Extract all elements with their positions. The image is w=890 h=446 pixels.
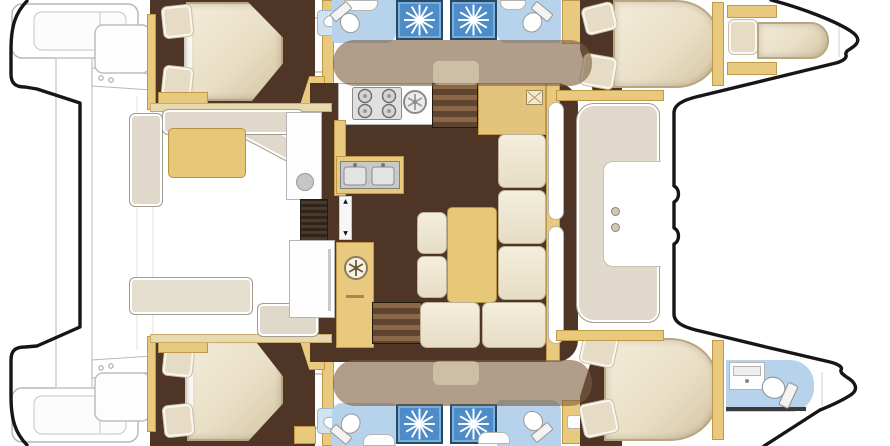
cupholder (611, 207, 620, 216)
pillow (162, 404, 194, 438)
bow-deck-beam (727, 62, 777, 75)
salon-window (548, 102, 564, 220)
wetbar-sink (296, 173, 314, 191)
bow-berth-pillow (729, 20, 757, 54)
dinette-cushion (482, 302, 546, 348)
starburst-shower-drain-icon (398, 2, 441, 38)
bathroom-vanity (500, 0, 526, 10)
stove-burners-icon (352, 87, 402, 120)
dinette-cushion (498, 134, 546, 188)
fwd-cabin-port-double-bed (613, 0, 720, 88)
double-sink-icon (340, 161, 400, 189)
transom-steps-top (12, 4, 138, 58)
davit-bracket-bottom (92, 356, 152, 378)
stern-hull-outline (11, 1, 80, 445)
starburst-shower-drain-icon (398, 406, 441, 442)
catamaran-floor-plan: ▲▼ (0, 0, 890, 446)
bow-single-berth (757, 22, 829, 59)
aft-cabin-stbd-wall (147, 336, 156, 432)
aft-cabin-port-wall (147, 14, 156, 110)
cockpit-fridge (289, 240, 335, 318)
pillow (579, 399, 619, 438)
companionway-stairs-stbd (372, 302, 422, 344)
bow-deck-beam (727, 5, 777, 18)
faucet-dot (745, 379, 749, 383)
shower-stall (450, 0, 497, 40)
round-hatch-wheel-icon (402, 89, 428, 115)
galley-peninsula (478, 83, 546, 135)
helm-seat-outline-bottom (95, 373, 150, 421)
dinette-cushion (498, 246, 546, 300)
foredeck-beam-bottom (556, 330, 664, 341)
utility-cabinet (336, 242, 374, 348)
davit-frame (56, 58, 92, 388)
cockpit-wetbar (286, 112, 322, 200)
foredeck-beam-top (556, 90, 664, 101)
fwd-cabin-stbd-double-bed (604, 338, 718, 441)
forward-cockpit-seat (576, 103, 660, 323)
bathroom-vanity (363, 434, 395, 446)
fridge-handle (328, 249, 331, 311)
cabinet-small (294, 426, 316, 444)
davit-bracket-top (92, 68, 152, 90)
cockpit-table (168, 128, 246, 178)
shower-stall (396, 0, 443, 40)
fwd-cabin-port-headboard (712, 2, 724, 86)
dinette-cushion (498, 190, 546, 244)
coachroof-hatch-bottom (433, 361, 479, 385)
shower-stall (396, 404, 443, 444)
starburst-shower-drain-icon (452, 2, 495, 38)
helm-seat-outline-top (95, 25, 150, 73)
bathroom-vanity (478, 432, 510, 444)
salon-window (548, 226, 564, 344)
fwd-cabin-stbd-headboard (712, 340, 724, 440)
companionway-arrow-icon: ▲▼ (339, 196, 352, 240)
bow-bathroom-threshold (726, 407, 806, 411)
dinette-cushion (420, 302, 480, 348)
round-hatch-wheel-icon (343, 255, 369, 281)
cupholder (611, 223, 620, 232)
cockpit-seat-left (129, 113, 163, 207)
pillow (161, 5, 193, 39)
cockpit-bench-bottom (129, 277, 253, 315)
dinette-seat-single (417, 256, 447, 298)
dinette-table (447, 207, 497, 303)
coachroof-hatch-top (433, 61, 479, 85)
hatch-icon (526, 90, 543, 105)
dinette-seat-single (417, 212, 447, 254)
companionway-stairs-port (432, 83, 478, 128)
cockpit-grate-mat (300, 199, 328, 241)
transom-steps-bottom (12, 388, 138, 442)
